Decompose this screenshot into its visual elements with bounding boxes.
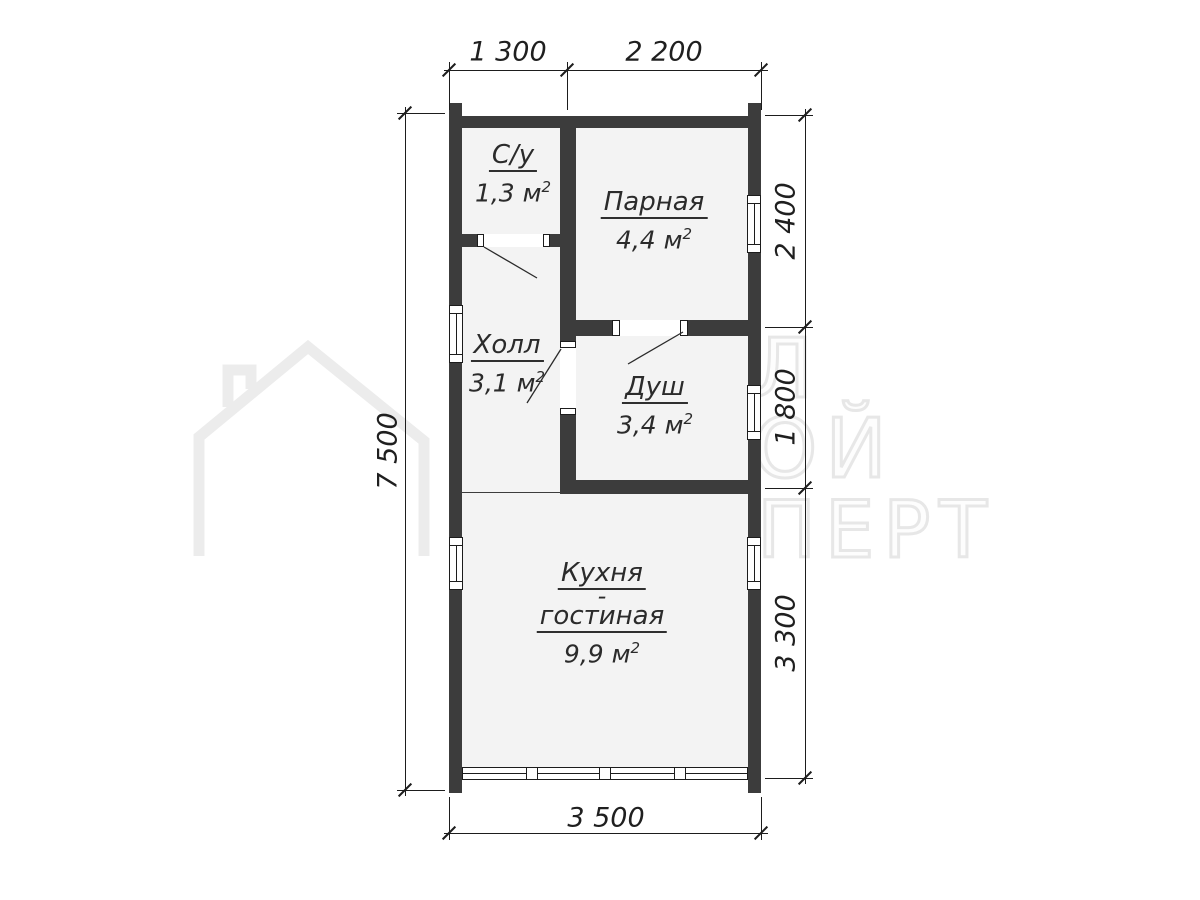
- door-jamb: [477, 234, 484, 247]
- room-label-holl: Холл 3,1 м2: [469, 332, 545, 395]
- dimension-label-top-2: 2 200: [625, 37, 702, 68]
- dimension-label-right-3: 3 300: [771, 594, 802, 671]
- room-area: 3,1 м2: [469, 365, 545, 395]
- wall-su-south-right: [550, 234, 560, 247]
- window-kitchen-left: [449, 537, 463, 590]
- wall-su-parnaya: [560, 128, 576, 342]
- room-label-su: С/у 1,3 м2: [475, 142, 551, 205]
- window-band-bottom: [462, 767, 748, 780]
- floor-plan-canvas: УРАЛ СТРОЙ ЭКСПЕРТ: [0, 0, 1200, 900]
- boundary-holl-kitchen: [462, 492, 560, 493]
- door-jamb: [680, 320, 688, 336]
- window-dush: [747, 385, 761, 440]
- room-area: 1,3 м2: [475, 175, 551, 205]
- wall-parnaya-dush-left: [576, 320, 612, 336]
- room-name: Парная: [601, 189, 708, 219]
- room-label-dush: Душ 3,4 м2: [617, 374, 693, 437]
- wall-parnaya-dush-right: [688, 320, 748, 336]
- dimension-label-bottom: 3 500: [567, 803, 644, 834]
- door-opening-su: [484, 234, 543, 247]
- room-area: 3,4 м2: [617, 407, 693, 437]
- room-area: 9,9 м2: [537, 636, 667, 666]
- dimension-label-left: 7 500: [373, 412, 404, 489]
- door-jamb: [612, 320, 620, 336]
- door-opening-dush-holl: [560, 348, 576, 408]
- wall-exterior-top: [449, 116, 761, 128]
- dimension-line-top: [444, 70, 768, 71]
- room-area: 4,4 м2: [601, 222, 708, 252]
- room-label-parnaya: Парная 4,4 м2: [601, 189, 708, 252]
- door-opening-parnaya: [620, 320, 680, 336]
- room-name: Холл: [471, 332, 544, 362]
- dimension-label-top-1: 1 300: [469, 37, 546, 68]
- dimension-label-right-1: 2 400: [771, 182, 802, 259]
- wall-su-south-left: [462, 234, 477, 247]
- room-name: Душ: [622, 374, 688, 404]
- dimension-line-right: [805, 109, 806, 784]
- dimension-line-left: [405, 107, 406, 796]
- window-holl: [449, 305, 463, 363]
- wall-exterior-left: [449, 103, 462, 793]
- room-name: С/у: [489, 142, 537, 172]
- window-parnaya: [747, 195, 761, 253]
- room-name: гостиная: [537, 603, 667, 633]
- room-label-kitchen: Кухня - гостиная 9,9 м2: [537, 560, 667, 666]
- wall-dush-kitchen: [560, 480, 748, 494]
- window-kitchen-right: [747, 537, 761, 590]
- door-jamb: [560, 408, 576, 415]
- door-jamb: [543, 234, 550, 247]
- door-jamb: [560, 341, 576, 348]
- dimension-label-right-2: 1 800: [771, 368, 802, 445]
